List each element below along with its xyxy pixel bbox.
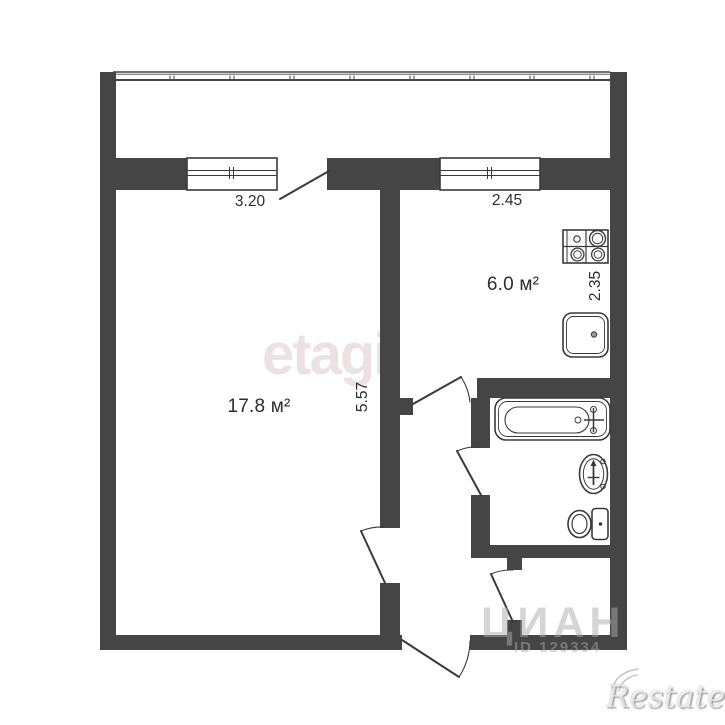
kitchen-depth-dimension: 2.35	[587, 211, 603, 361]
wash-basin	[580, 455, 608, 494]
wall-facade-mid	[327, 158, 440, 190]
wall-bathroom-bottom	[471, 545, 627, 558]
wall-facade-right	[540, 158, 627, 190]
kitchen-window-dimension: 2.45	[432, 192, 582, 210]
kitchen-door	[413, 377, 470, 404]
bathroom-door	[457, 447, 481, 495]
wall-interior-lower	[380, 583, 400, 650]
restate-watermark: Restate	[606, 682, 725, 713]
wall-bottom-left	[100, 635, 402, 650]
living-depth-dimension: 5.57	[354, 322, 370, 472]
wall-interior-upper	[380, 190, 400, 528]
balcony-glazing	[113, 71, 610, 81]
kitchen-window	[440, 158, 540, 190]
living-window-dimension: 3.20	[175, 193, 325, 211]
living-room-door	[361, 527, 385, 583]
cian-id-watermark: ID 129334	[514, 640, 601, 655]
toilet	[568, 509, 608, 540]
floorplan-page: etagi	[0, 0, 725, 725]
wall-corridor-stub-upper	[507, 558, 522, 570]
entrance-door	[402, 640, 470, 677]
wall-kitchen-bottom	[477, 378, 627, 398]
kitchen-area-label: 6.0 м²	[438, 274, 588, 296]
wall-facade-left	[100, 158, 187, 190]
wall-bathroom-left-upper	[471, 398, 490, 448]
bathtub	[495, 398, 610, 440]
living-room-window	[187, 158, 277, 190]
living-room-area-label: 17.8 м²	[184, 396, 334, 418]
wall-kitchen-door-stub	[400, 398, 413, 415]
